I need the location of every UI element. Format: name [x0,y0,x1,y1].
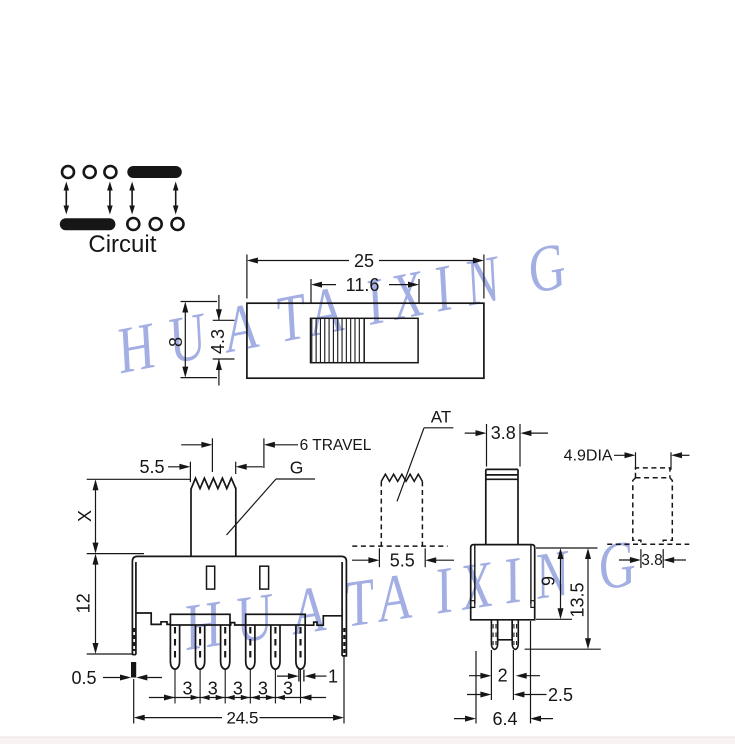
svg-text:2: 2 [498,666,508,686]
svg-text:24.5: 24.5 [227,709,259,728]
svg-text:G: G [290,458,304,478]
svg-text:9: 9 [539,576,559,586]
svg-text:6 TRAVEL: 6 TRAVEL [300,437,372,454]
svg-text:3: 3 [233,679,243,699]
svg-text:1: 1 [328,667,338,687]
svg-text:0.5: 0.5 [71,668,96,688]
svg-text:25: 25 [354,251,374,271]
svg-text:AT: AT [431,408,451,427]
svg-text:12: 12 [74,593,94,613]
svg-text:3: 3 [258,679,268,699]
svg-text:3: 3 [182,679,192,699]
svg-text:13.5: 13.5 [568,582,588,617]
svg-text:6.4: 6.4 [492,709,517,729]
svg-text:3: 3 [283,679,293,699]
svg-text:5.5: 5.5 [139,457,164,477]
svg-text:5.5: 5.5 [390,550,415,570]
svg-text:11.6: 11.6 [346,275,380,295]
svg-text:3.8: 3.8 [641,552,663,569]
svg-text:X: X [75,510,95,522]
svg-text:4.9DIA: 4.9DIA [564,448,613,465]
svg-text:8: 8 [166,337,186,347]
svg-text:Circuit: Circuit [88,231,156,258]
svg-text:2.5: 2.5 [548,685,573,705]
svg-text:3.8: 3.8 [491,423,516,443]
svg-text:4.3: 4.3 [208,329,228,354]
svg-text:3: 3 [208,679,218,699]
